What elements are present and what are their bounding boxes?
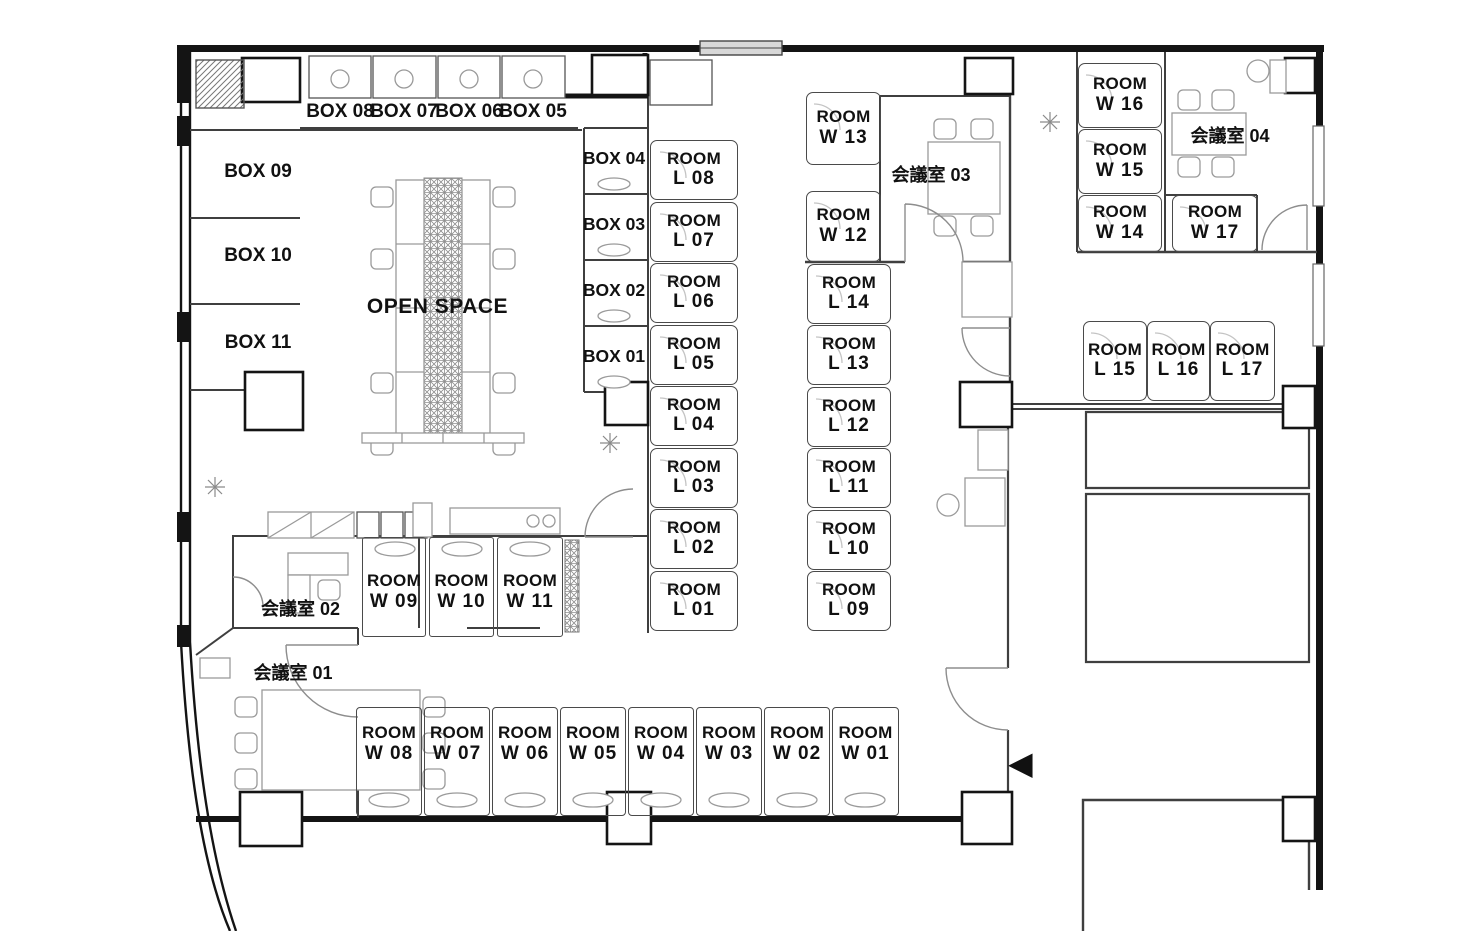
room-l15: ROOML 15 (1083, 321, 1147, 401)
room-code-label: W 03 (705, 744, 753, 765)
room-w04: ROOMW 04 (628, 707, 694, 816)
room-code-label: W 06 (501, 744, 549, 765)
green-wall-strip (565, 540, 579, 632)
box-01-label: BOX 01 (583, 344, 645, 368)
room-w06: ROOMW 06 (492, 707, 558, 816)
room-code-label: L 13 (828, 354, 870, 375)
room-w08: ROOMW 08 (356, 707, 422, 816)
room-code-label: L 09 (828, 600, 870, 621)
room-code-label: W 16 (1096, 95, 1144, 116)
room-type-label: ROOM (816, 206, 870, 225)
room-code-label: W 02 (773, 744, 821, 765)
meeting-room-01-label: 会議室 01 (228, 660, 358, 684)
meeting-room-04-label: 会議室 04 (1166, 122, 1294, 148)
room-code-label: W 08 (365, 744, 413, 765)
box-10-label: BOX 10 (210, 243, 306, 269)
room-code-label: W 10 (437, 592, 485, 613)
room-code-label: L 15 (1094, 360, 1136, 381)
room-code-label: L 12 (828, 416, 870, 437)
room-type-label: ROOM (822, 335, 876, 354)
plant-icon (600, 433, 620, 453)
room-l08: ROOML 08 (650, 140, 738, 200)
room-w11: ROOMW 11 (497, 537, 563, 637)
room-w07: ROOMW 07 (424, 707, 490, 816)
room-type-label: ROOM (434, 572, 488, 591)
room-type-label: ROOM (702, 724, 756, 743)
room-type-label: ROOM (634, 724, 688, 743)
room-type-label: ROOM (1151, 341, 1205, 360)
room-l14: ROOML 14 (807, 264, 891, 324)
room-l04: ROOML 04 (650, 386, 738, 446)
room-code-label: W 11 (506, 592, 553, 613)
room-type-label: ROOM (822, 581, 876, 600)
room-w05: ROOMW 05 (560, 707, 626, 816)
room-type-label: ROOM (566, 724, 620, 743)
room-type-label: ROOM (667, 458, 721, 477)
room-code-label: W 07 (433, 744, 481, 765)
room-type-label: ROOM (667, 519, 721, 538)
room-l10: ROOML 10 (807, 510, 891, 570)
room-l05: ROOML 05 (650, 325, 738, 385)
room-w16: ROOMW 16 (1078, 63, 1162, 128)
room-w15: ROOMW 15 (1078, 129, 1162, 194)
room-l03: ROOML 03 (650, 448, 738, 508)
room-l06: ROOML 06 (650, 263, 738, 323)
room-code-label: L 16 (1158, 360, 1200, 381)
room-code-label: L 06 (673, 292, 715, 313)
room-w10: ROOMW 10 (429, 537, 494, 637)
room-code-label: W 14 (1096, 223, 1144, 244)
room-w12: ROOMW 12 (806, 191, 881, 262)
room-w14: ROOMW 14 (1078, 195, 1162, 252)
room-l12: ROOML 12 (807, 387, 891, 447)
box-04-label: BOX 04 (583, 146, 645, 170)
open-space-label: OPEN SPACE (355, 292, 520, 322)
room-type-label: ROOM (822, 274, 876, 293)
room-type-label: ROOM (430, 724, 484, 743)
room-code-label: L 10 (828, 539, 870, 560)
room-w17: ROOMW 17 (1172, 195, 1258, 252)
room-code-label: W 12 (819, 226, 867, 247)
box-09-label: BOX 09 (210, 159, 306, 185)
room-code-label: L 01 (673, 600, 715, 621)
room-code-label: L 14 (828, 293, 870, 314)
room-code-label: L 02 (673, 538, 715, 559)
room-type-label: ROOM (822, 397, 876, 416)
room-type-label: ROOM (667, 581, 721, 600)
room-type-label: ROOM (367, 572, 421, 591)
room-code-label: W 09 (370, 592, 418, 613)
room-l17: ROOML 17 (1210, 321, 1275, 401)
room-l07: ROOML 07 (650, 202, 738, 262)
room-code-label: L 11 (829, 477, 870, 498)
room-l16: ROOML 16 (1147, 321, 1210, 401)
corner-planter (196, 60, 244, 108)
room-code-label: L 07 (673, 231, 715, 252)
room-code-label: L 05 (673, 354, 715, 375)
room-type-label: ROOM (770, 724, 824, 743)
room-w01: ROOMW 01 (832, 707, 899, 816)
box-07-label: BOX 07 (372, 100, 436, 124)
room-code-label: W 15 (1096, 161, 1144, 182)
room-l02: ROOML 02 (650, 509, 738, 569)
room-type-label: ROOM (1215, 341, 1269, 360)
room-type-label: ROOM (1093, 203, 1147, 222)
meeting-room-02-label: 会議室 02 (238, 596, 363, 620)
room-l01: ROOML 01 (650, 571, 738, 631)
room-type-label: ROOM (362, 724, 416, 743)
room-w09: ROOMW 09 (362, 537, 426, 637)
room-type-label: ROOM (1093, 141, 1147, 160)
room-type-label: ROOM (498, 724, 552, 743)
room-type-label: ROOM (1188, 203, 1242, 222)
plant-icon (1040, 112, 1060, 132)
room-type-label: ROOM (667, 396, 721, 415)
room-type-label: ROOM (667, 150, 721, 169)
room-type-label: ROOM (838, 724, 892, 743)
room-l09: ROOML 09 (807, 571, 891, 631)
room-code-label: W 05 (569, 744, 617, 765)
door-swings (233, 204, 1307, 730)
room-code-label: L 08 (673, 169, 715, 190)
plant-icon (205, 477, 225, 497)
room-w02: ROOMW 02 (764, 707, 830, 816)
meeting-room-03-label: 会議室 03 (872, 161, 990, 187)
room-code-label: W 01 (841, 744, 889, 765)
box-03-label: BOX 03 (583, 212, 645, 236)
box-06-label: BOX 06 (437, 100, 501, 124)
box-05-label: BOX 05 (501, 100, 565, 124)
room-type-label: ROOM (667, 212, 721, 231)
room-code-label: W 04 (637, 744, 685, 765)
room-type-label: ROOM (667, 335, 721, 354)
entrance-arrow-icon: ◀ (1008, 747, 1033, 779)
room-type-label: ROOM (822, 458, 876, 477)
room-type-label: ROOM (816, 108, 870, 127)
box-11-label: BOX 11 (210, 330, 306, 356)
room-code-label: L 03 (673, 477, 715, 498)
room-type-label: ROOM (1088, 341, 1142, 360)
room-type-label: ROOM (503, 572, 557, 591)
box-08-label: BOX 08 (308, 100, 372, 124)
room-code-label: W 13 (819, 128, 867, 149)
room-l13: ROOML 13 (807, 325, 891, 385)
room-code-label: L 17 (1222, 360, 1264, 381)
room-code-label: W 17 (1191, 223, 1239, 244)
room-type-label: ROOM (1093, 75, 1147, 94)
room-l11: ROOML 11 (807, 448, 891, 508)
room-type-label: ROOM (667, 273, 721, 292)
room-w03: ROOMW 03 (696, 707, 762, 816)
box-02-label: BOX 02 (583, 278, 645, 302)
floor-plan: ROOML 08 ROOML 07 ROOML 06 ROOML 05 ROOM… (0, 0, 1475, 931)
room-code-label: L 04 (673, 415, 715, 436)
room-type-label: ROOM (822, 520, 876, 539)
room-w13: ROOMW 13 (806, 92, 881, 165)
